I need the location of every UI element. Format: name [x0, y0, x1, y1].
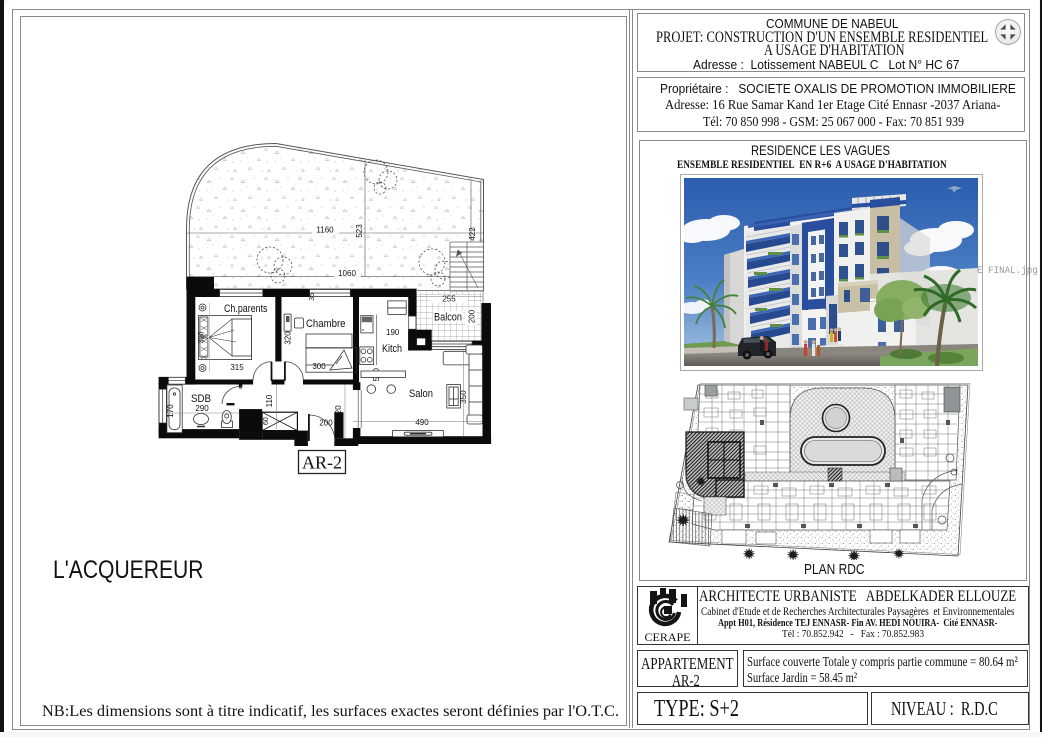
svg-text:Kitch: Kitch	[382, 343, 402, 355]
svg-text:190: 190	[386, 328, 400, 337]
svg-text:422: 422	[468, 227, 477, 241]
svg-text:200: 200	[468, 309, 477, 323]
svg-text:220: 220	[334, 405, 343, 419]
svg-text:35: 35	[309, 293, 316, 301]
svg-text:60: 60	[263, 417, 270, 425]
svg-text:200: 200	[319, 419, 333, 428]
svg-text:490: 490	[415, 418, 429, 427]
svg-text:320: 320	[284, 331, 293, 345]
svg-text:1060: 1060	[338, 269, 356, 278]
svg-text:Ch.parents: Ch.parents	[224, 303, 268, 315]
svg-text:Chambre: Chambre	[306, 318, 346, 330]
svg-text:Salon: Salon	[409, 388, 433, 400]
svg-text:170: 170	[166, 404, 175, 418]
svg-text:300: 300	[312, 362, 326, 371]
svg-text:523: 523	[355, 224, 364, 238]
svg-text:AR-2: AR-2	[302, 453, 342, 473]
svg-text:255: 255	[442, 295, 456, 304]
svg-text:1160: 1160	[316, 226, 334, 235]
svg-text:315: 315	[230, 363, 244, 372]
svg-text:320: 320	[199, 332, 206, 344]
svg-text:Balcon: Balcon	[434, 312, 462, 324]
svg-text:110: 110	[265, 394, 274, 407]
svg-text:290: 290	[195, 404, 209, 413]
